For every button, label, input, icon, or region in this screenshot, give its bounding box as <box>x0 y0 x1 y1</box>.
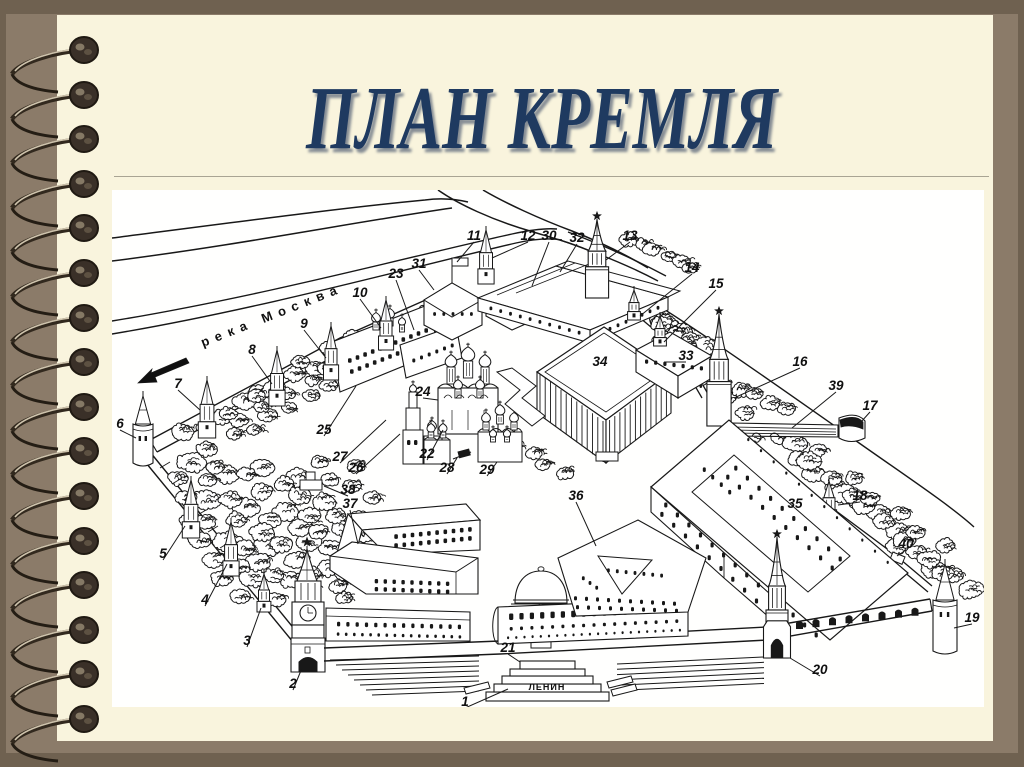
svg-text:8: 8 <box>248 342 256 357</box>
svg-text:24: 24 <box>414 384 431 399</box>
svg-text:37: 37 <box>342 496 359 511</box>
svg-text:32: 32 <box>569 230 585 245</box>
svg-text:36: 36 <box>568 488 584 503</box>
svg-text:25: 25 <box>315 422 332 437</box>
svg-text:1: 1 <box>461 694 469 707</box>
svg-text:21: 21 <box>499 640 515 655</box>
svg-text:39: 39 <box>828 378 844 393</box>
svg-text:20: 20 <box>811 662 828 677</box>
svg-text:13: 13 <box>622 228 638 243</box>
svg-text:ЛЕНИН: ЛЕНИН <box>529 682 566 692</box>
svg-text:2: 2 <box>288 676 297 691</box>
svg-text:16: 16 <box>792 354 808 369</box>
svg-text:4: 4 <box>200 592 209 607</box>
svg-text:29: 29 <box>478 462 495 477</box>
svg-text:35: 35 <box>787 496 803 511</box>
svg-text:28: 28 <box>438 460 455 475</box>
svg-text:22: 22 <box>418 446 435 461</box>
svg-text:17: 17 <box>862 398 879 413</box>
svg-text:12: 12 <box>520 228 536 243</box>
svg-text:9: 9 <box>300 316 308 331</box>
svg-text:6: 6 <box>116 416 124 431</box>
svg-text:15: 15 <box>708 276 724 291</box>
svg-text:27: 27 <box>331 449 349 464</box>
svg-text:3: 3 <box>243 633 251 648</box>
svg-text:11: 11 <box>467 228 481 243</box>
svg-text:23: 23 <box>387 266 404 281</box>
svg-text:34: 34 <box>592 354 608 369</box>
svg-text:38: 38 <box>340 482 356 497</box>
svg-text:река Москва: река Москва <box>199 280 345 349</box>
svg-text:33: 33 <box>678 348 694 363</box>
svg-text:30: 30 <box>541 228 557 243</box>
svg-text:7: 7 <box>174 376 183 391</box>
svg-text:18: 18 <box>852 488 868 503</box>
svg-text:31: 31 <box>411 256 426 271</box>
svg-text:19: 19 <box>964 610 980 625</box>
svg-text:10: 10 <box>352 285 368 300</box>
svg-text:40: 40 <box>897 536 914 551</box>
svg-text:26: 26 <box>347 460 364 475</box>
svg-text:14: 14 <box>684 260 700 275</box>
svg-text:5: 5 <box>159 546 167 561</box>
